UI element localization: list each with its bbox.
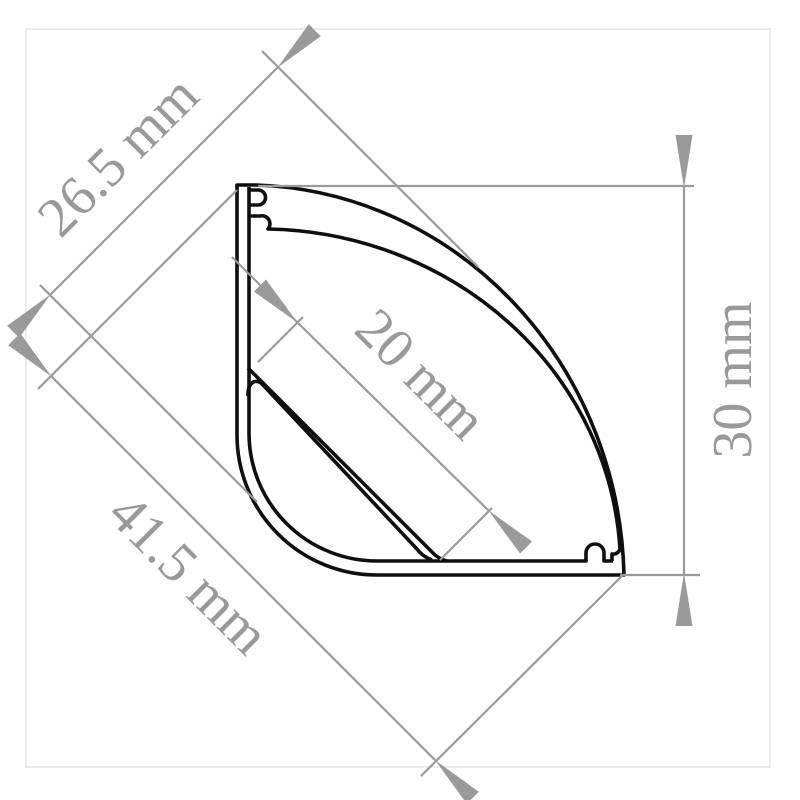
drawing-canvas: 26.5 mm 30 mm 20 mm 41.5 mm bbox=[0, 0, 800, 800]
technical-drawing: 26.5 mm 30 mm 20 mm 41.5 mm bbox=[0, 0, 800, 800]
dimension-label-30: 30 mm bbox=[702, 301, 764, 458]
